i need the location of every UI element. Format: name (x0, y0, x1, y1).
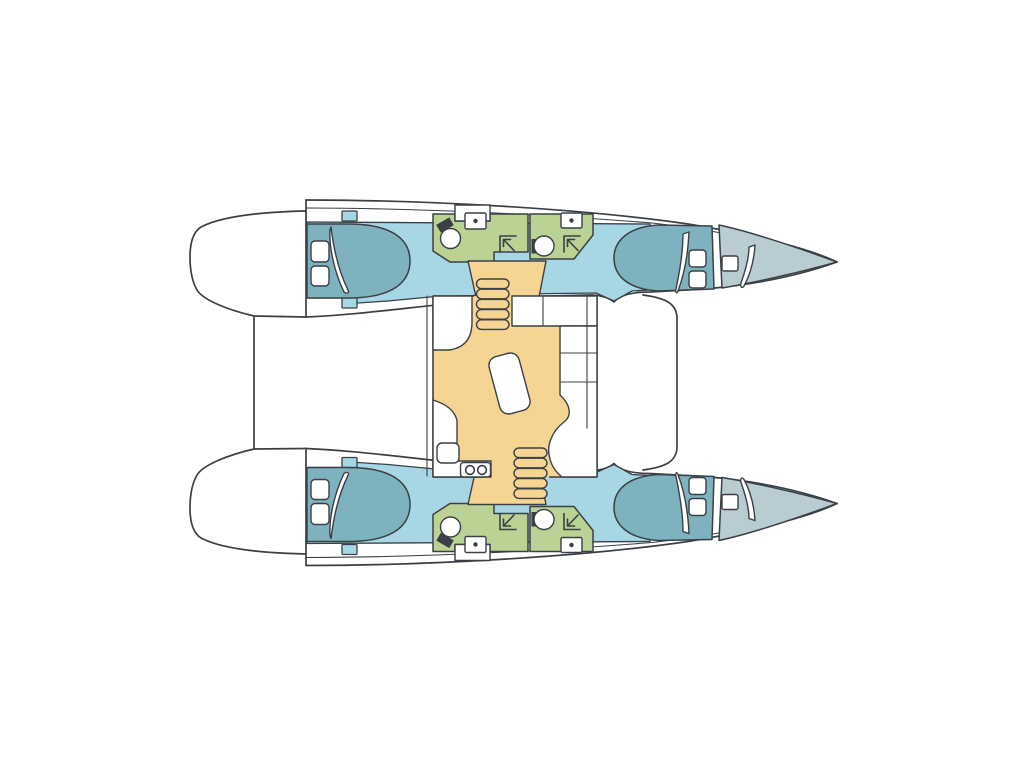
washbasin-drain (473, 219, 477, 223)
companionway-step-aft-lower (342, 298, 357, 308)
aft-platform-starboard-step-line (254, 449, 306, 450)
forward-cabin (614, 225, 714, 293)
stair-tread (514, 489, 547, 499)
toilet-bowl (534, 236, 554, 256)
companionway-step-aft-upper (342, 211, 357, 221)
stair-tread (477, 289, 510, 299)
stair-tread (477, 299, 510, 309)
stair-tread (477, 279, 510, 289)
pillow (689, 250, 706, 267)
stair-tread (514, 458, 547, 468)
stairs-to-port-hull (477, 279, 510, 329)
saloon (427, 279, 597, 498)
washbasin-drain (569, 218, 573, 222)
deck-hatch (722, 256, 738, 271)
stair-tread (514, 479, 547, 489)
catamaran-floor-plan (0, 0, 1024, 768)
forward-cockpit-coaming (643, 295, 677, 470)
stair-tread (477, 320, 510, 330)
aft-deck (190, 211, 306, 554)
aft-platform-port-step-line (254, 316, 306, 317)
pillow (689, 271, 706, 288)
sideboard-top (512, 296, 597, 326)
aft-galley-counter (433, 296, 472, 350)
galley-sink (437, 443, 459, 463)
pillow (311, 266, 329, 286)
pillow (311, 241, 329, 262)
aft-platform-outline (190, 211, 306, 554)
stair-tread (514, 448, 547, 458)
toilet-bowl (441, 229, 461, 249)
stairs-to-starboard-hull (514, 448, 547, 498)
stair-tread (477, 310, 510, 320)
floor-plan-page (0, 0, 1024, 768)
aft-cabin (307, 224, 410, 298)
stair-tread (514, 468, 547, 478)
stove (461, 463, 491, 478)
